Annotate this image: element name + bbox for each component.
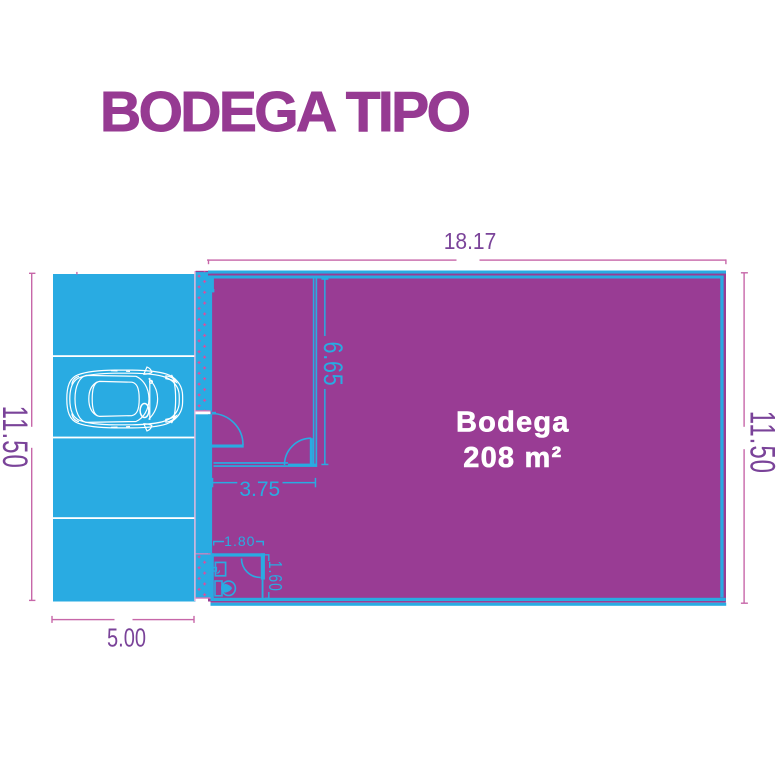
svg-text:1.80: 1.80 [224,533,255,549]
svg-text:11.50: 11.50 [742,411,780,474]
svg-text:5.00: 5.00 [107,623,146,652]
svg-text:6.65: 6.65 [317,341,347,386]
svg-text:BODEGA TIPO: BODEGA TIPO [100,80,469,144]
svg-text:3.75: 3.75 [239,478,280,501]
svg-text:18.17: 18.17 [444,228,497,254]
svg-text:1.60: 1.60 [265,561,285,592]
svg-text:208 m²: 208 m² [463,442,562,474]
svg-text:11.50: 11.50 [0,406,33,469]
svg-text:Bodega: Bodega [456,407,570,439]
